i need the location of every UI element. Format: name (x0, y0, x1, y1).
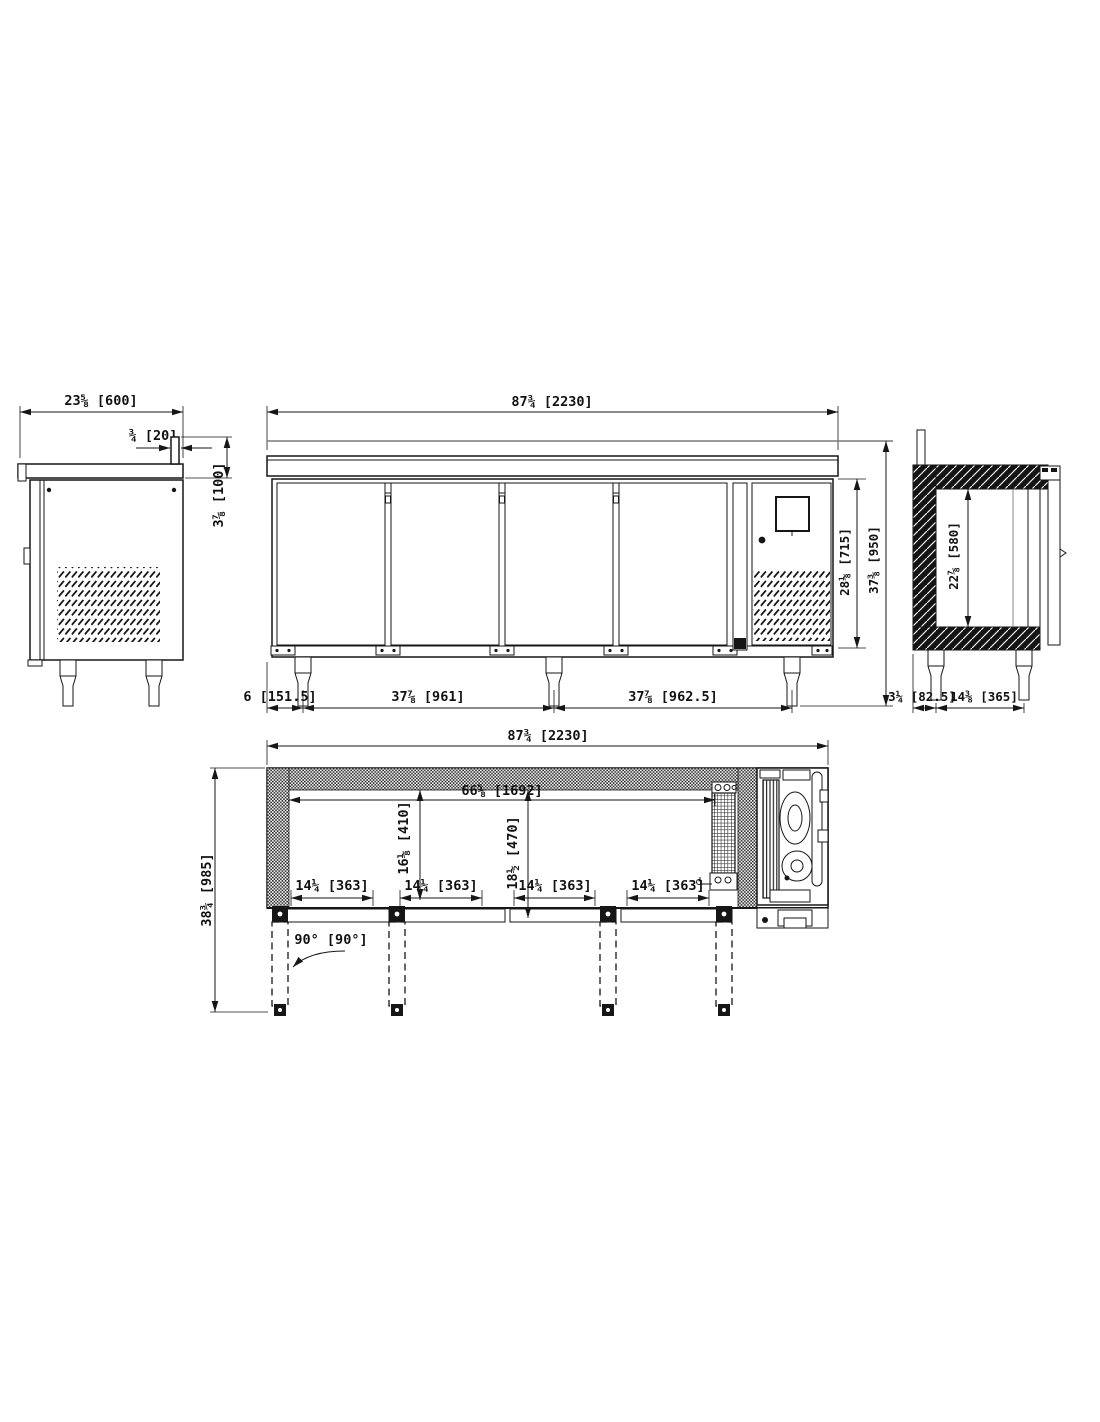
door-leaf (621, 909, 732, 922)
dim-interior-height: 22⅞ [580] (946, 522, 961, 590)
dim-plan-width: 87¾ [2230] (507, 728, 588, 744)
refrigerant-pipe (812, 772, 822, 886)
door-4 (619, 483, 727, 645)
swing-leader-arc (293, 951, 345, 967)
countertop-front-lip (18, 464, 26, 481)
machine-front-panel-plan (757, 908, 828, 928)
door-handle-tick (1060, 549, 1066, 557)
dim-leg-right: 37⅞ [962.5] (628, 689, 717, 705)
leg (1016, 650, 1032, 700)
door-2 (391, 483, 499, 645)
divider-panel (733, 483, 747, 650)
left-wall-section (913, 465, 936, 650)
condenser-coil (763, 780, 779, 898)
front-view: 87¾ [2230] (243, 394, 893, 713)
open-door (600, 922, 616, 1006)
screw-dot (172, 488, 176, 492)
partition-insulation (738, 768, 757, 908)
door-inner-liner (1028, 489, 1040, 627)
machine-compartment (757, 768, 828, 905)
dim-splash-lip: ¾ [20] (129, 428, 178, 444)
dim-interior-depth: 16⅛ [410] (396, 801, 412, 874)
drawing-canvas: 23⅝ [600] ¾ [20] 3⅞ [100] 87 (0, 0, 1100, 1422)
dim-leg-offset: 3¼ [82.5] (888, 689, 956, 704)
condenser-vent-grille (753, 571, 830, 641)
dim-interior-width: 66⅝ [1692] (461, 783, 542, 799)
door-leaf (394, 909, 505, 922)
hinge-bolt (1042, 468, 1048, 472)
component-box (783, 770, 810, 780)
plan-view: 87¾ [2230] (199, 728, 828, 1016)
left-side-view: 23⅝ [600] ¾ [20] 3⅞ [100] (18, 393, 232, 706)
bottom-wall-section (913, 627, 1040, 650)
compressor-cap (791, 860, 803, 872)
dim-left-depth: 23⅝ [600] (64, 393, 137, 409)
leg (146, 660, 162, 706)
leg (60, 660, 76, 706)
dim-door-width-4: 14¼ [363] (631, 878, 704, 894)
open-door (389, 922, 405, 1006)
dim-door-width-3: 14¼ [363] (518, 878, 591, 894)
open-door-feet (274, 1004, 730, 1016)
door-leaf (278, 909, 389, 922)
base-step (28, 660, 42, 666)
dim-door-swing: 90° [90°] (294, 932, 367, 948)
countertop (18, 464, 183, 478)
dim-plan-depth: 38¾ [985] (199, 853, 215, 926)
door-3 (505, 483, 613, 645)
right-side-view: 22⅞ [580] 3¼ [82.5] 14⅜ [365] (888, 430, 1066, 713)
dim-front-width: 87¾ [2230] (511, 394, 592, 410)
vent-grille (57, 567, 160, 642)
technical-drawing-page: 23⅝ [600] ¾ [20] 3⅞ [100] 87 (0, 0, 1100, 1422)
dim-body-height: 28⅛ [715] (837, 528, 852, 596)
dim-overall-height: 37⅜ [950] (866, 526, 881, 594)
dim-door-width-1: 14¼ [363] (295, 878, 368, 894)
open-door (716, 922, 732, 1006)
open-door (272, 922, 288, 1006)
fan-blade (788, 805, 802, 831)
door-section (1048, 472, 1060, 645)
dim-leg-mid: 37⅞ [961] (391, 689, 464, 705)
door-leafs-closed (278, 909, 732, 922)
dim-splash-height: 3⅞ [100] (211, 462, 227, 527)
component-box (760, 770, 780, 778)
component-box (770, 890, 810, 902)
component-box (818, 830, 828, 842)
backsplash (171, 437, 179, 464)
divider-foot (734, 638, 746, 649)
compressor-foot (785, 876, 790, 881)
component-box (820, 790, 828, 802)
door-1 (277, 483, 385, 645)
countertop (267, 456, 838, 476)
indicator-light (759, 537, 766, 544)
left-wall-insulation (267, 768, 289, 908)
dim-leg-spacing: 14⅜ [365] (950, 689, 1018, 704)
dim-door-width-2: 14¼ [363] (404, 878, 477, 894)
dim-leg-left: 6 [151.5] (243, 689, 316, 705)
hinge-bolt (1051, 468, 1057, 472)
backsplash (917, 430, 925, 466)
screw-dot (47, 488, 51, 492)
door-handle (24, 548, 30, 564)
